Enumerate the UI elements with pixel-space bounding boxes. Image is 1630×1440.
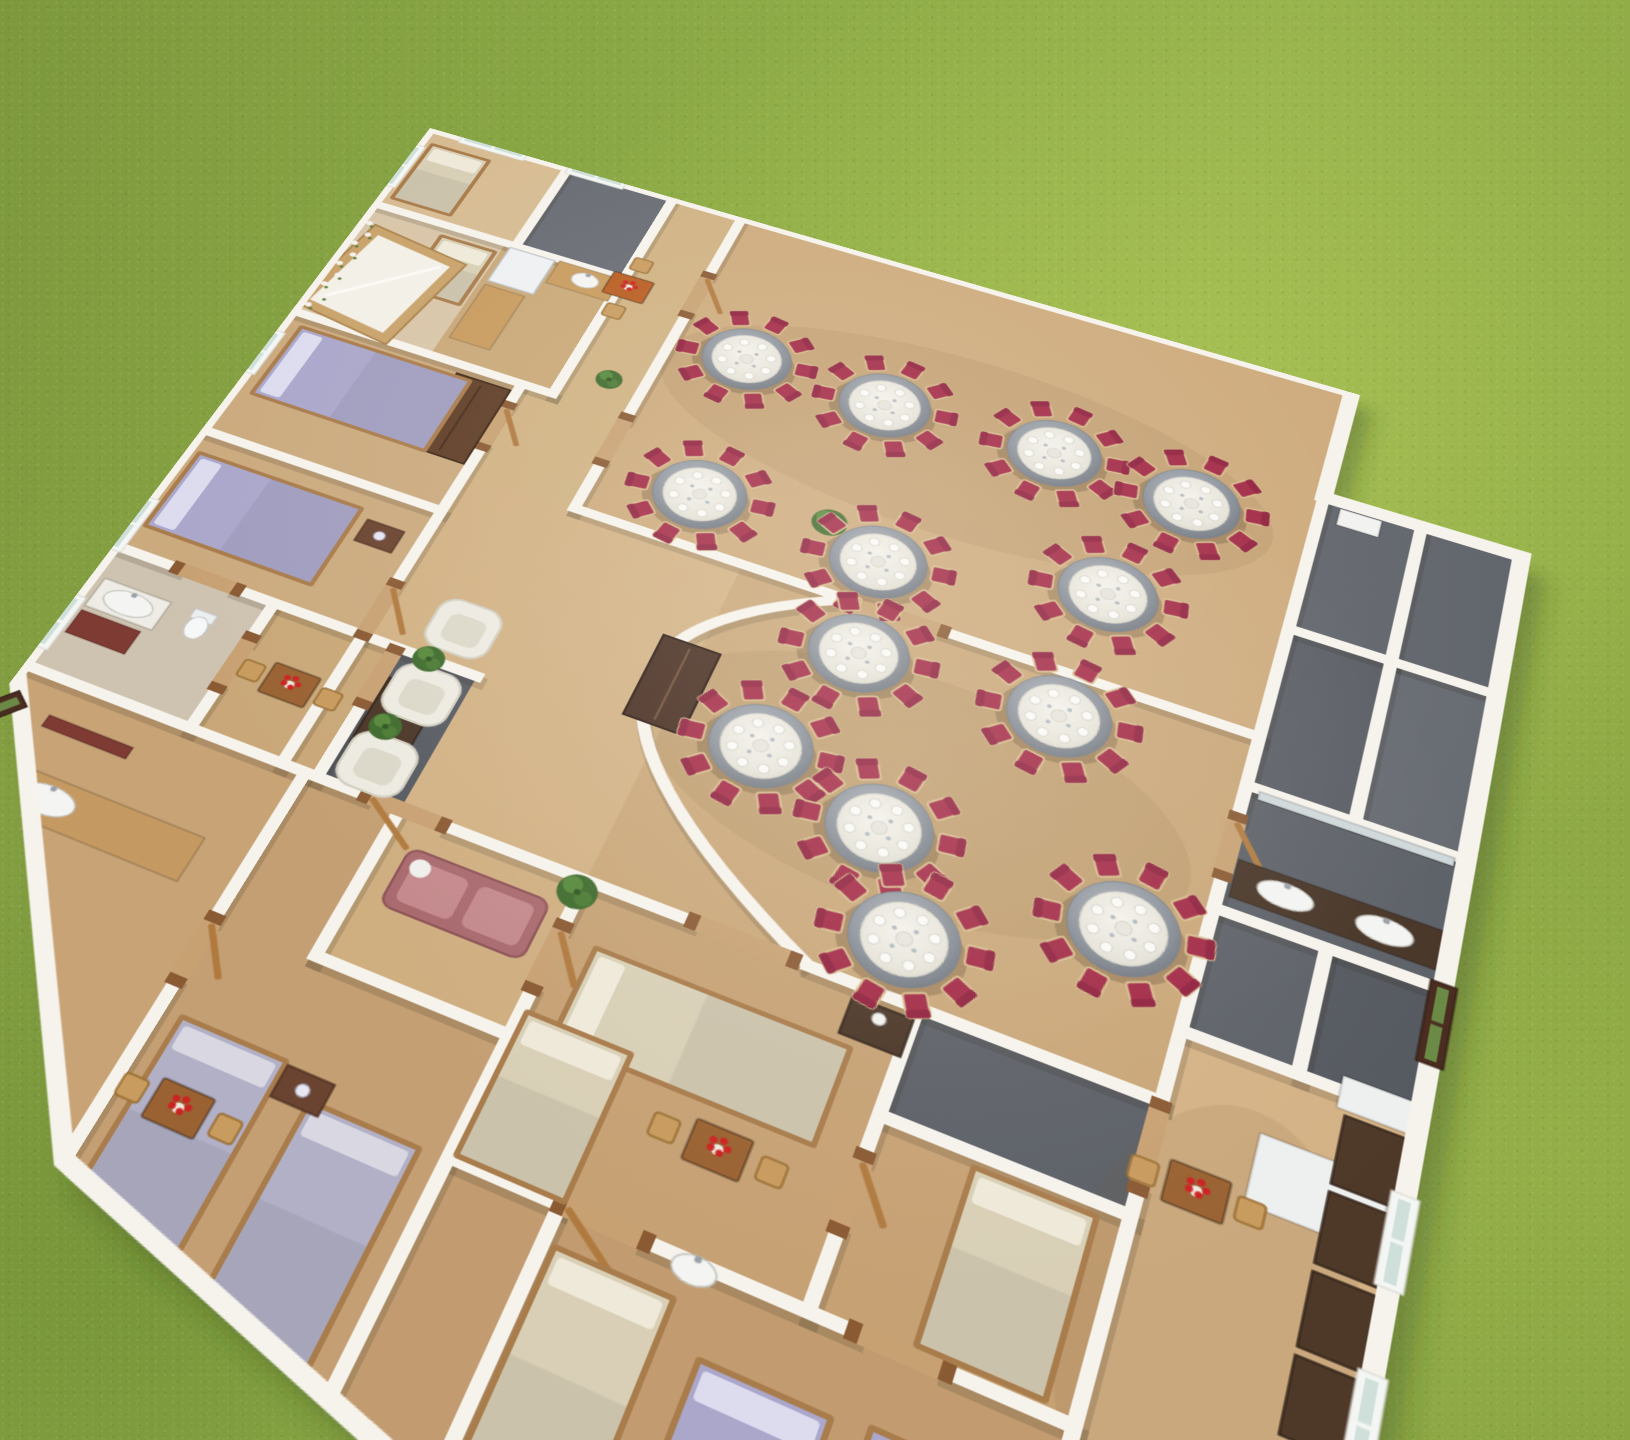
floor-plan-render: [0, 0, 1630, 1440]
